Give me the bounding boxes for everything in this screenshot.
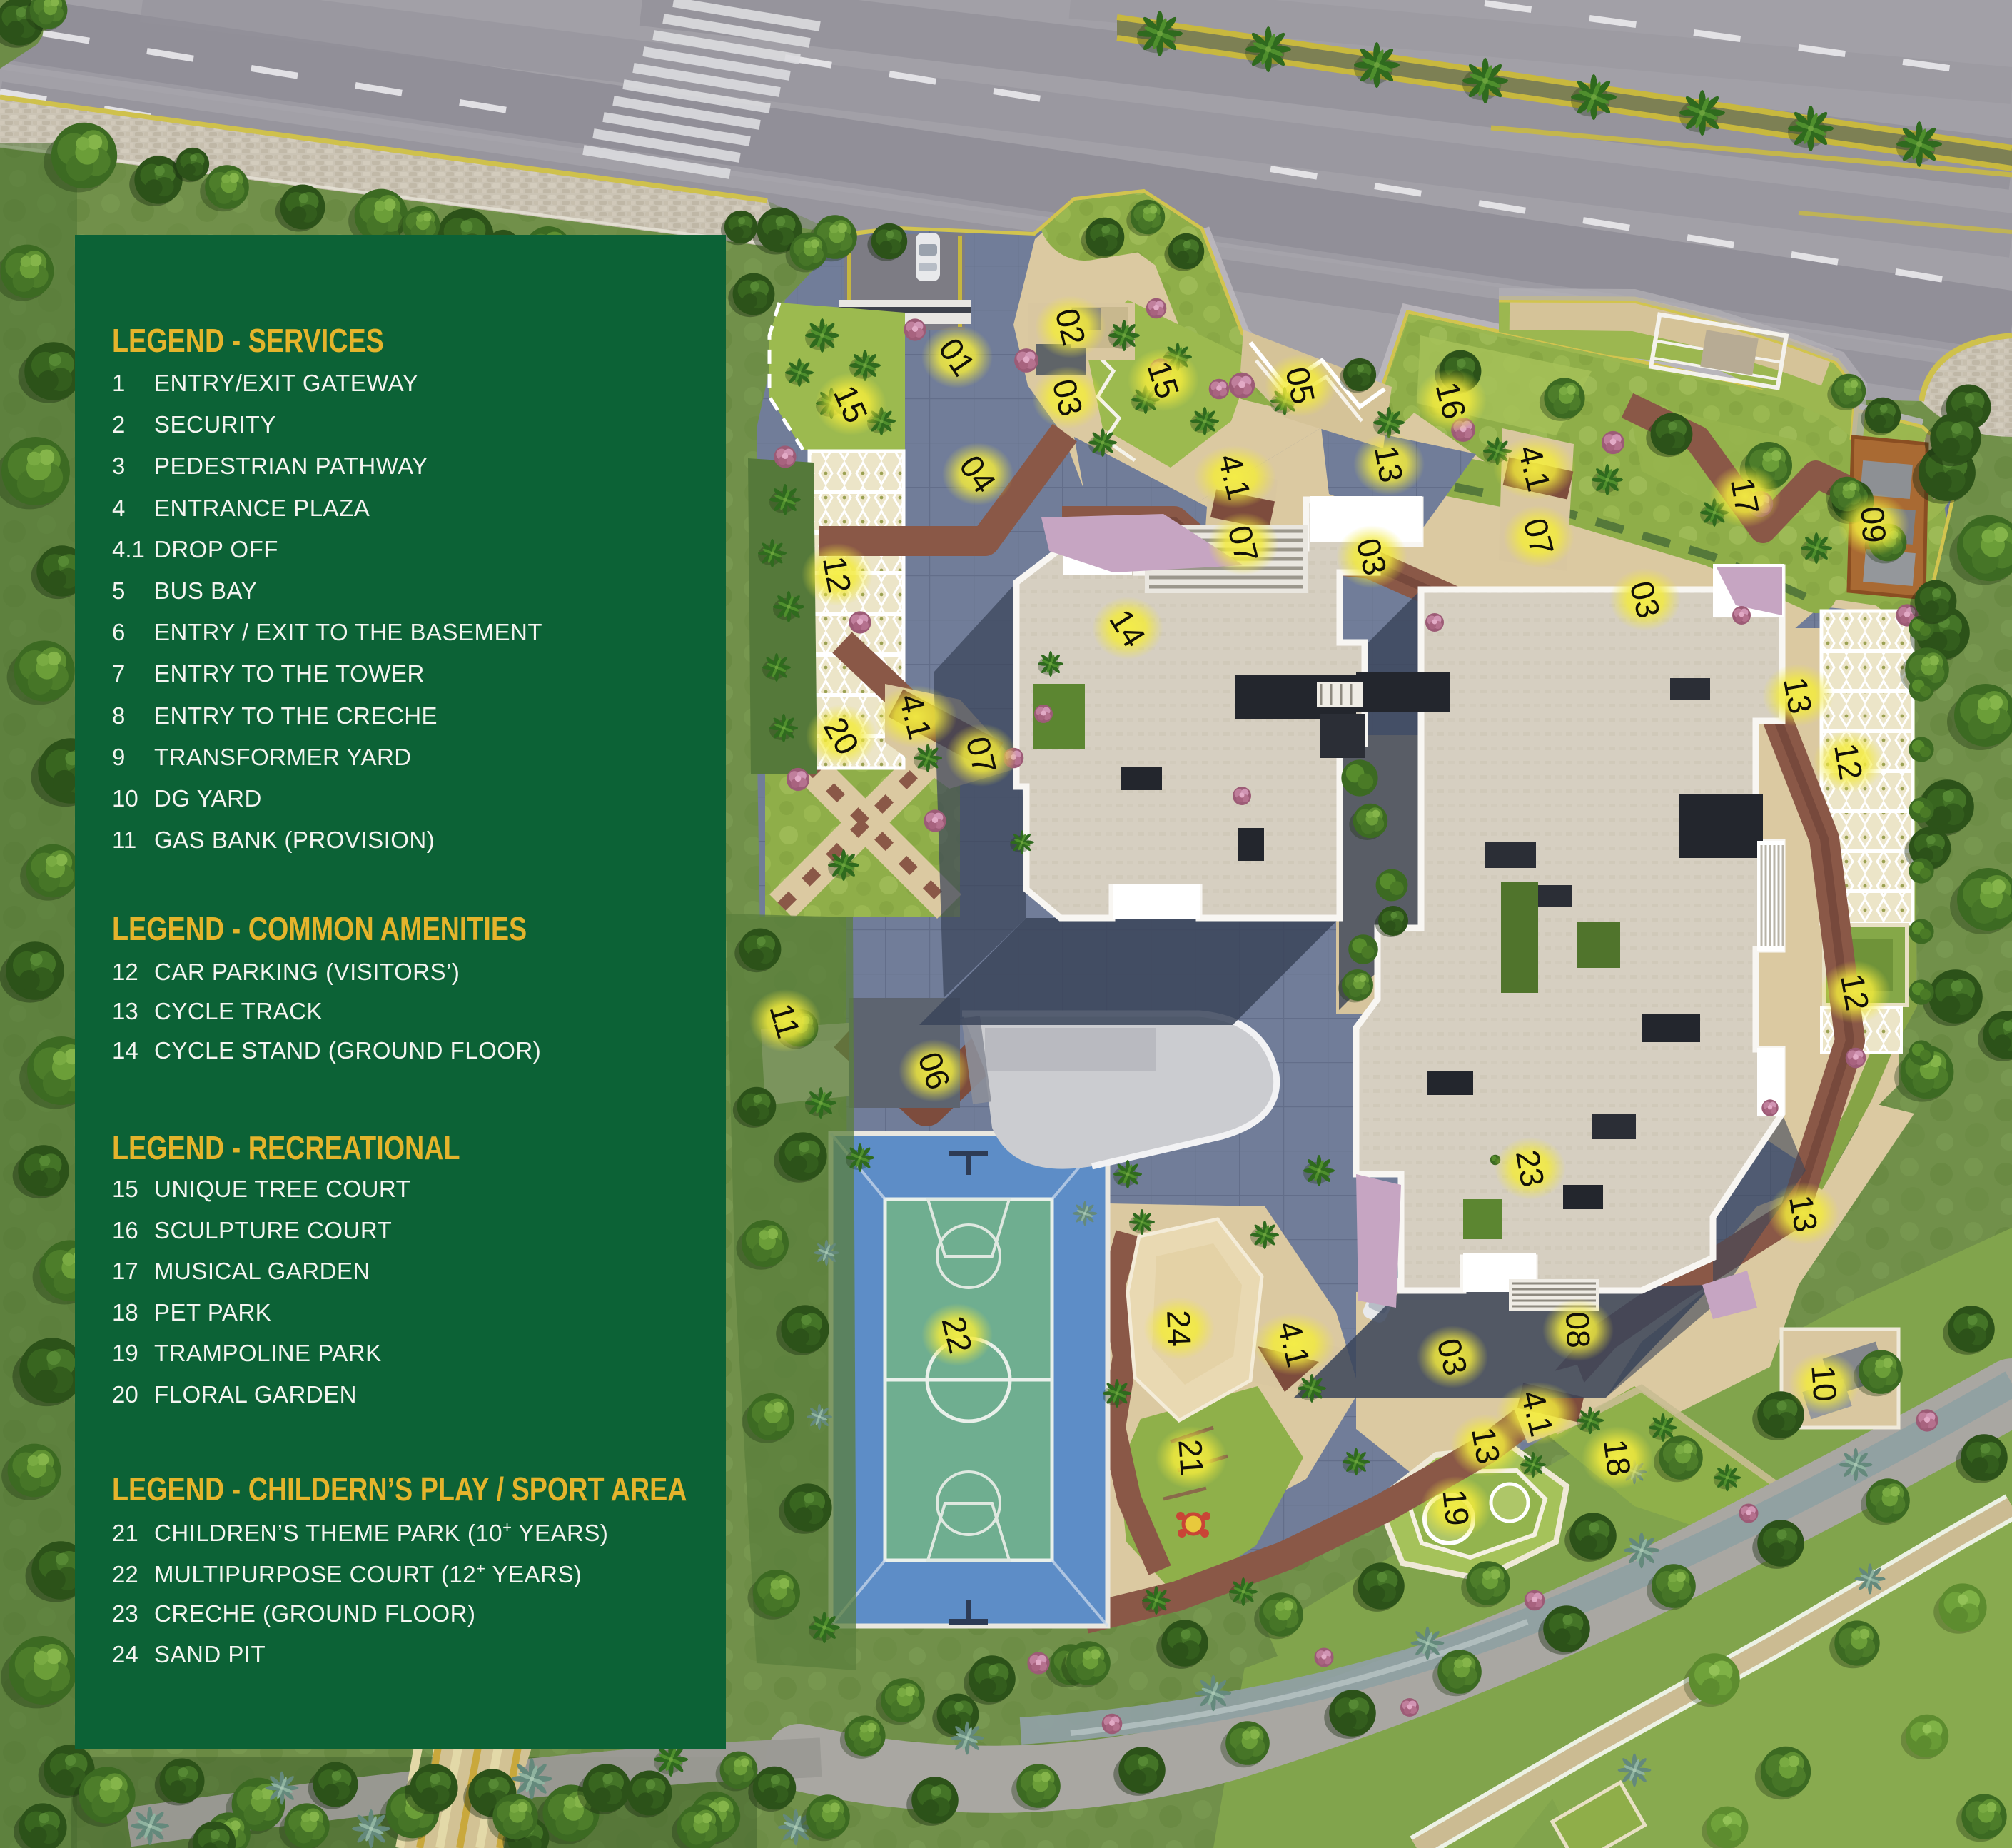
- svg-text:13: 13: [1782, 1192, 1825, 1234]
- svg-text:19: 19: [1435, 1488, 1476, 1528]
- svg-text:24: 24: [1160, 1310, 1198, 1348]
- svg-text:05: 05: [1278, 364, 1323, 408]
- svg-text:21: 21: [1171, 1438, 1210, 1478]
- svg-text:17: 17: [1724, 475, 1766, 517]
- svg-text:23: 23: [1509, 1147, 1552, 1189]
- svg-text:08: 08: [1559, 1311, 1597, 1349]
- svg-text:09: 09: [1854, 505, 1893, 545]
- svg-text:12: 12: [816, 553, 859, 595]
- svg-text:10: 10: [1804, 1364, 1844, 1403]
- svg-text:13: 13: [1776, 674, 1819, 716]
- svg-text:13: 13: [1368, 443, 1410, 485]
- svg-text:13: 13: [1465, 1424, 1507, 1466]
- svg-text:12: 12: [1827, 740, 1870, 782]
- svg-text:18: 18: [1597, 1437, 1639, 1478]
- svg-text:12: 12: [1834, 971, 1876, 1013]
